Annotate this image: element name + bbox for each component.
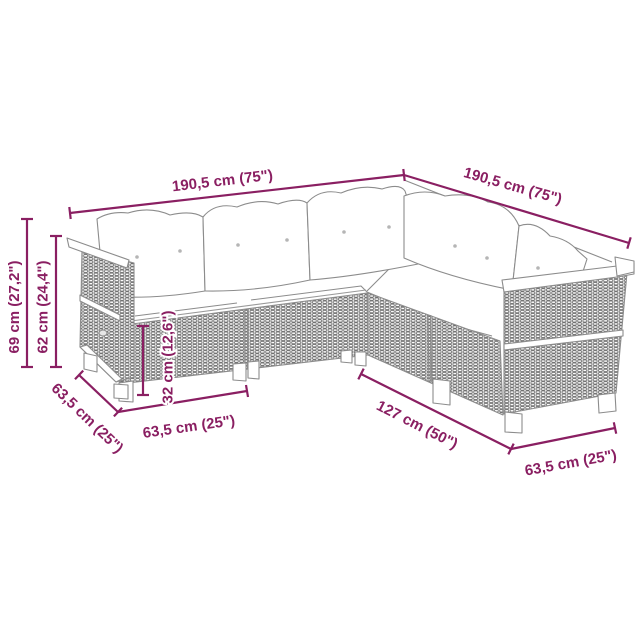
svg-text:63,5 cm (25"): 63,5 cm (25") <box>142 412 236 442</box>
svg-text:32 cm (12,6"): 32 cm (12,6") <box>160 310 177 403</box>
svg-text:63,5 cm (25"): 63,5 cm (25") <box>523 447 618 480</box>
svg-text:127 cm (50"): 127 cm (50") <box>374 397 461 452</box>
svg-text:62 cm (24,4"): 62 cm (24,4") <box>35 260 52 353</box>
svg-text:69 cm (27,2"): 69 cm (27,2") <box>6 260 23 353</box>
